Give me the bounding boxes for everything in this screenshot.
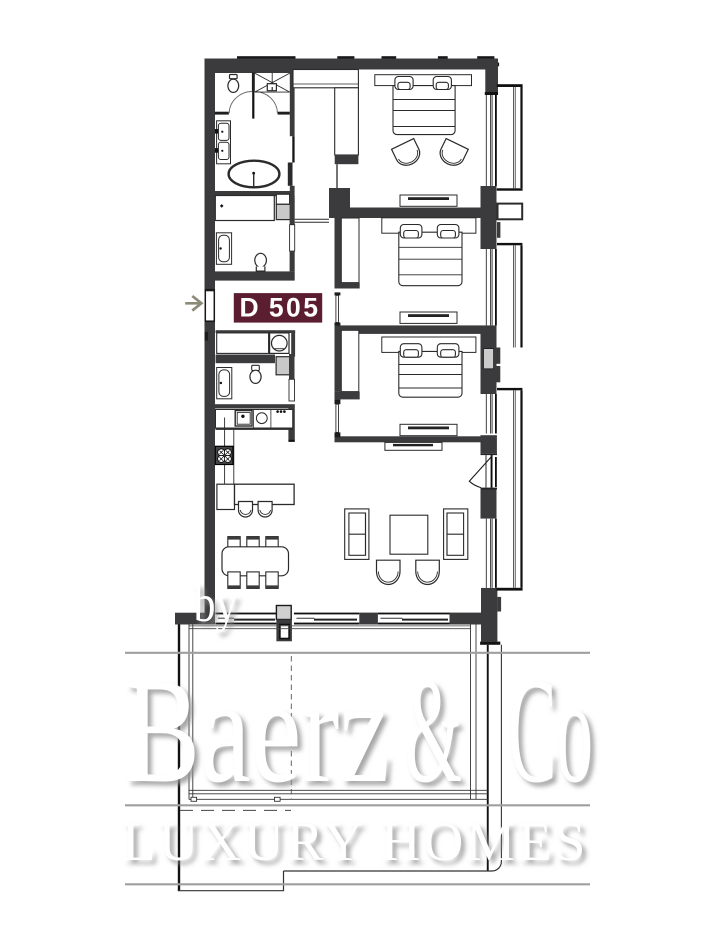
svg-text:by: by [194, 575, 238, 633]
svg-text:LUXURY HOMES: LUXURY HOMES [122, 811, 588, 872]
svg-text:Baerz: Baerz [124, 648, 390, 814]
svg-text:&: & [405, 648, 462, 814]
svg-text:Co: Co [508, 648, 593, 814]
svg-text:D 505: D 505 [240, 293, 319, 323]
